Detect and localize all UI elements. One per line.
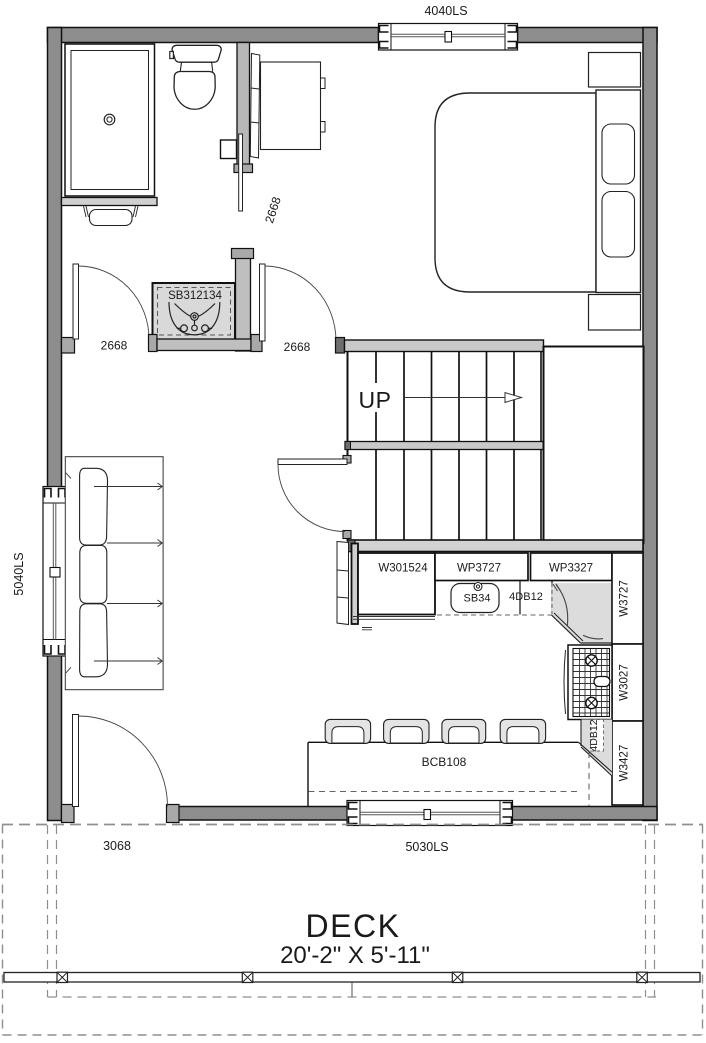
svg-text:3068: 3068: [103, 839, 131, 853]
svg-text:WP3727: WP3727: [457, 563, 501, 575]
svg-text:W3027: W3027: [619, 664, 631, 700]
svg-text:2668: 2668: [101, 339, 128, 353]
svg-text:WP3327: WP3327: [549, 563, 593, 575]
svg-text:5030LS: 5030LS: [405, 840, 448, 854]
svg-text:SB34: SB34: [464, 593, 491, 605]
svg-text:5040LS: 5040LS: [12, 552, 26, 595]
svg-text:W301524: W301524: [378, 563, 428, 575]
svg-text:SB312134: SB312134: [168, 290, 222, 302]
svg-text:W3427: W3427: [619, 745, 631, 781]
svg-text:2668: 2668: [284, 340, 311, 354]
svg-text:UP: UP: [359, 387, 392, 413]
svg-text:20'-2" X 5'-11": 20'-2" X 5'-11": [280, 942, 430, 969]
svg-text:4040LS: 4040LS: [424, 4, 467, 18]
svg-text:DECK: DECK: [306, 908, 401, 944]
svg-text:4DB12: 4DB12: [588, 719, 600, 751]
svg-text:W3727: W3727: [619, 580, 631, 616]
svg-text:BCB108: BCB108: [422, 755, 467, 769]
svg-text:4DB12: 4DB12: [509, 591, 543, 603]
